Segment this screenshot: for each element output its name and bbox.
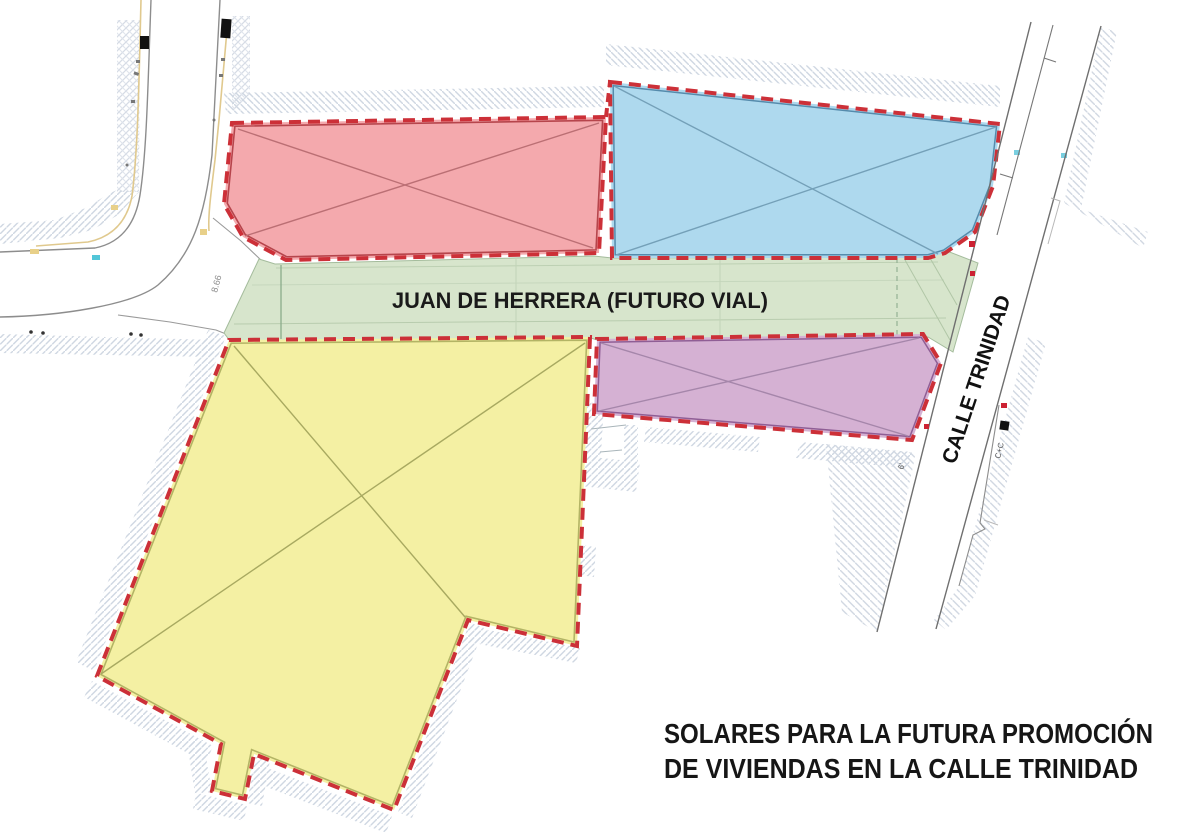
svg-text:SOLARES PARA LA FUTURA PROMOCI: SOLARES PARA LA FUTURA PROMOCIÓN (664, 718, 1153, 749)
svg-text:JUAN DE HERRERA (FUTURO VIAL): JUAN DE HERRERA (FUTURO VIAL) (392, 288, 768, 313)
svg-text:DE VIVIENDAS EN LA CALLE TRINI: DE VIVIENDAS EN LA CALLE TRINIDAD (664, 753, 1138, 784)
